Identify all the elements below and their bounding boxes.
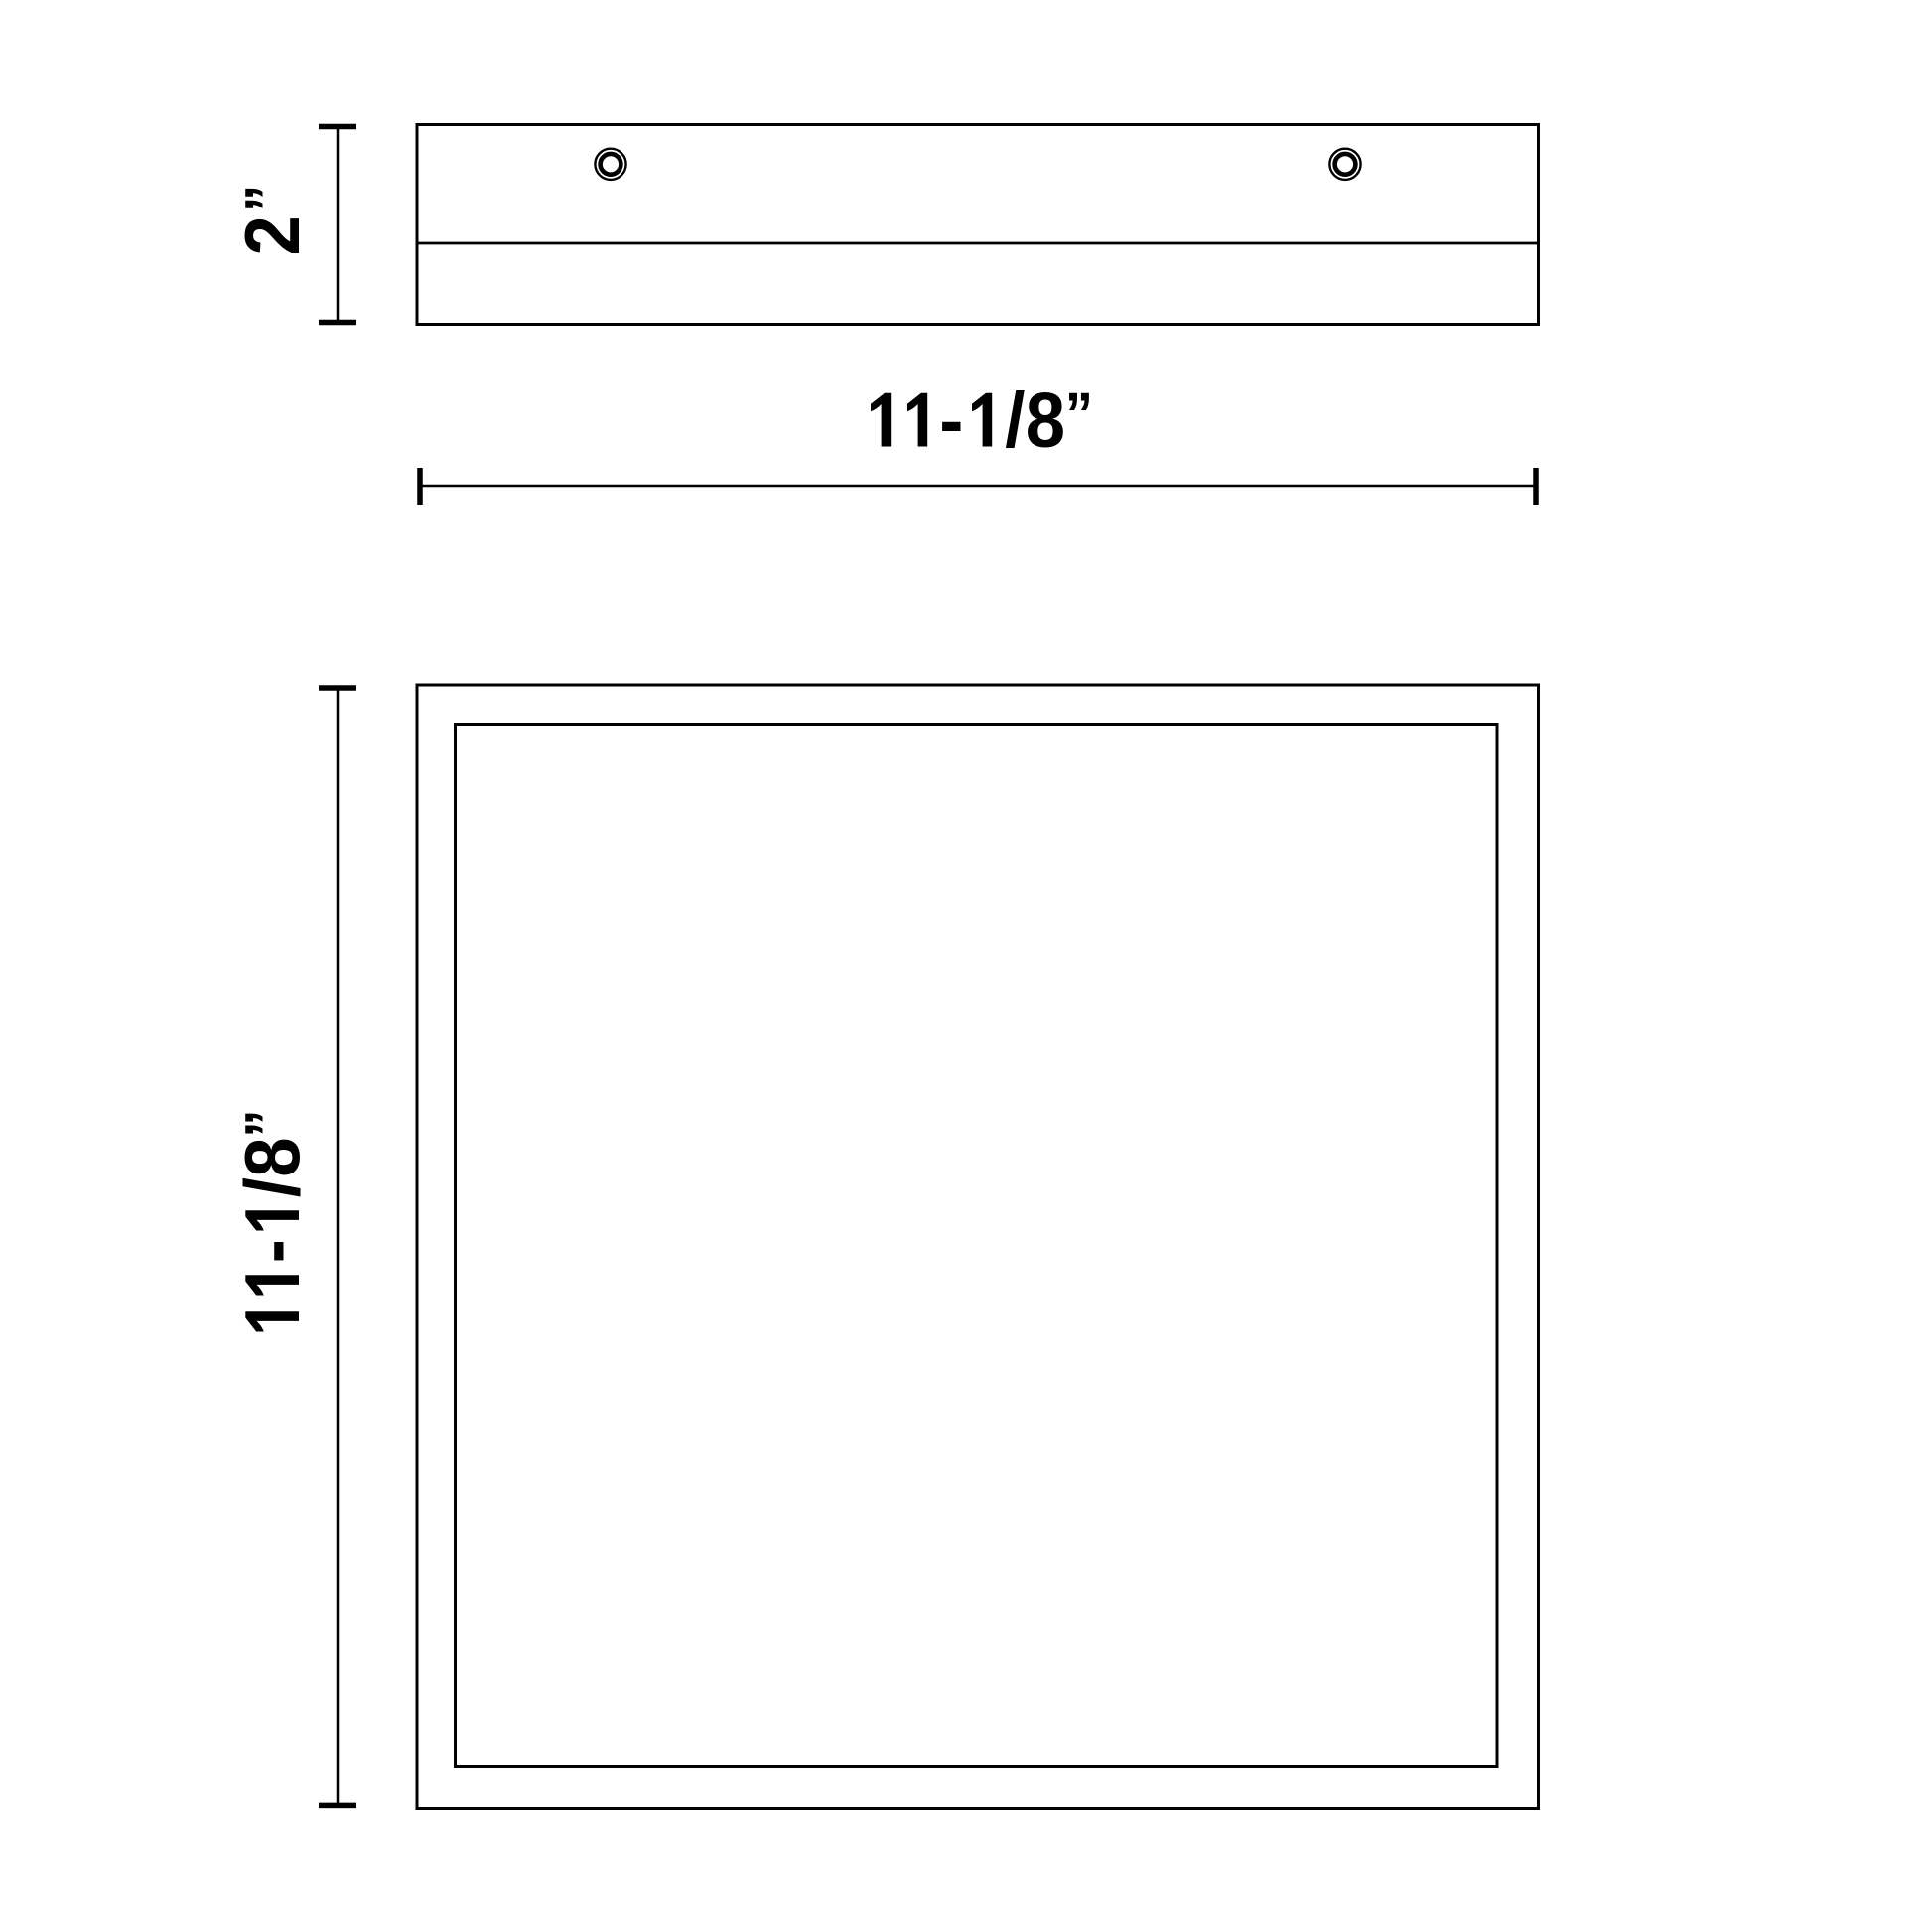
svg-text:-: - xyxy=(229,1239,316,1263)
svg-text:8: 8 xyxy=(1026,376,1065,463)
svg-text:”: ” xyxy=(1065,381,1093,448)
svg-text:2: 2 xyxy=(229,215,316,255)
svg-text:”: ” xyxy=(233,185,300,212)
svg-text:8: 8 xyxy=(229,1137,316,1176)
svg-text:/: / xyxy=(229,1177,316,1197)
svg-text:”: ” xyxy=(233,1109,300,1137)
svg-text:-: - xyxy=(939,376,963,463)
svg-text:/: / xyxy=(1005,376,1025,463)
